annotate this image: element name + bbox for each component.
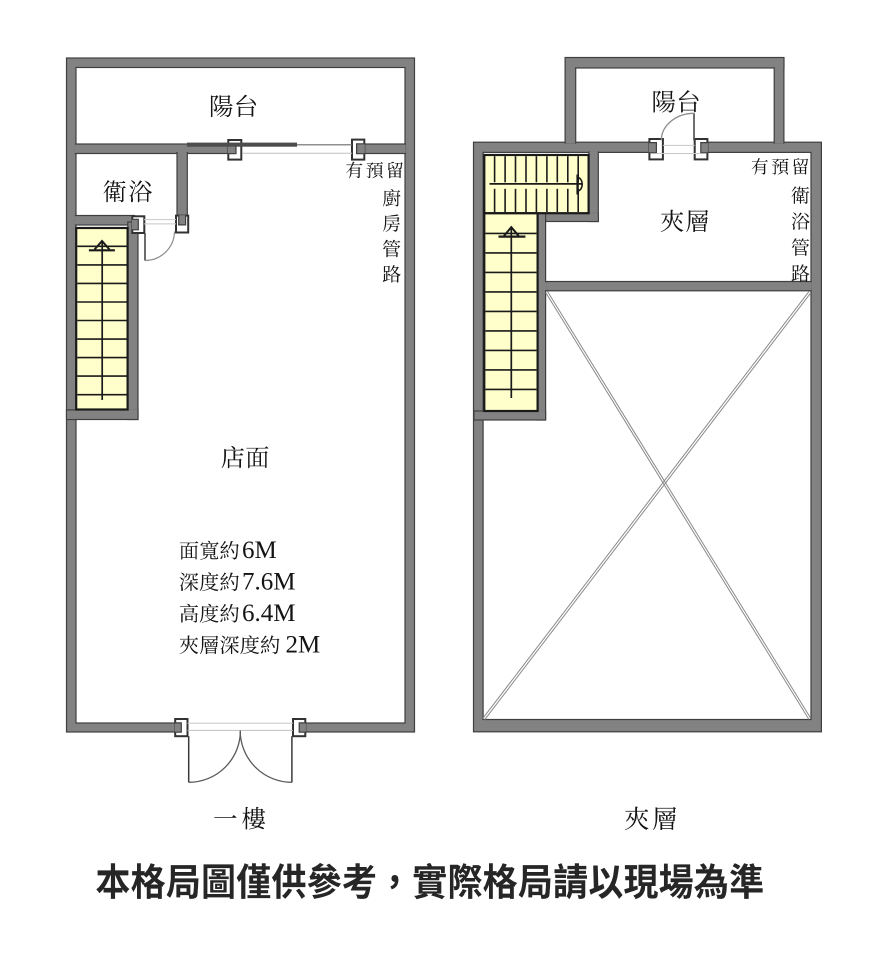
svg-text:7.6M: 7.6M xyxy=(242,568,295,595)
svg-text:6.4M: 6.4M xyxy=(242,600,295,627)
svg-text:2M: 2M xyxy=(286,631,321,658)
svg-text:6M: 6M xyxy=(242,537,277,564)
